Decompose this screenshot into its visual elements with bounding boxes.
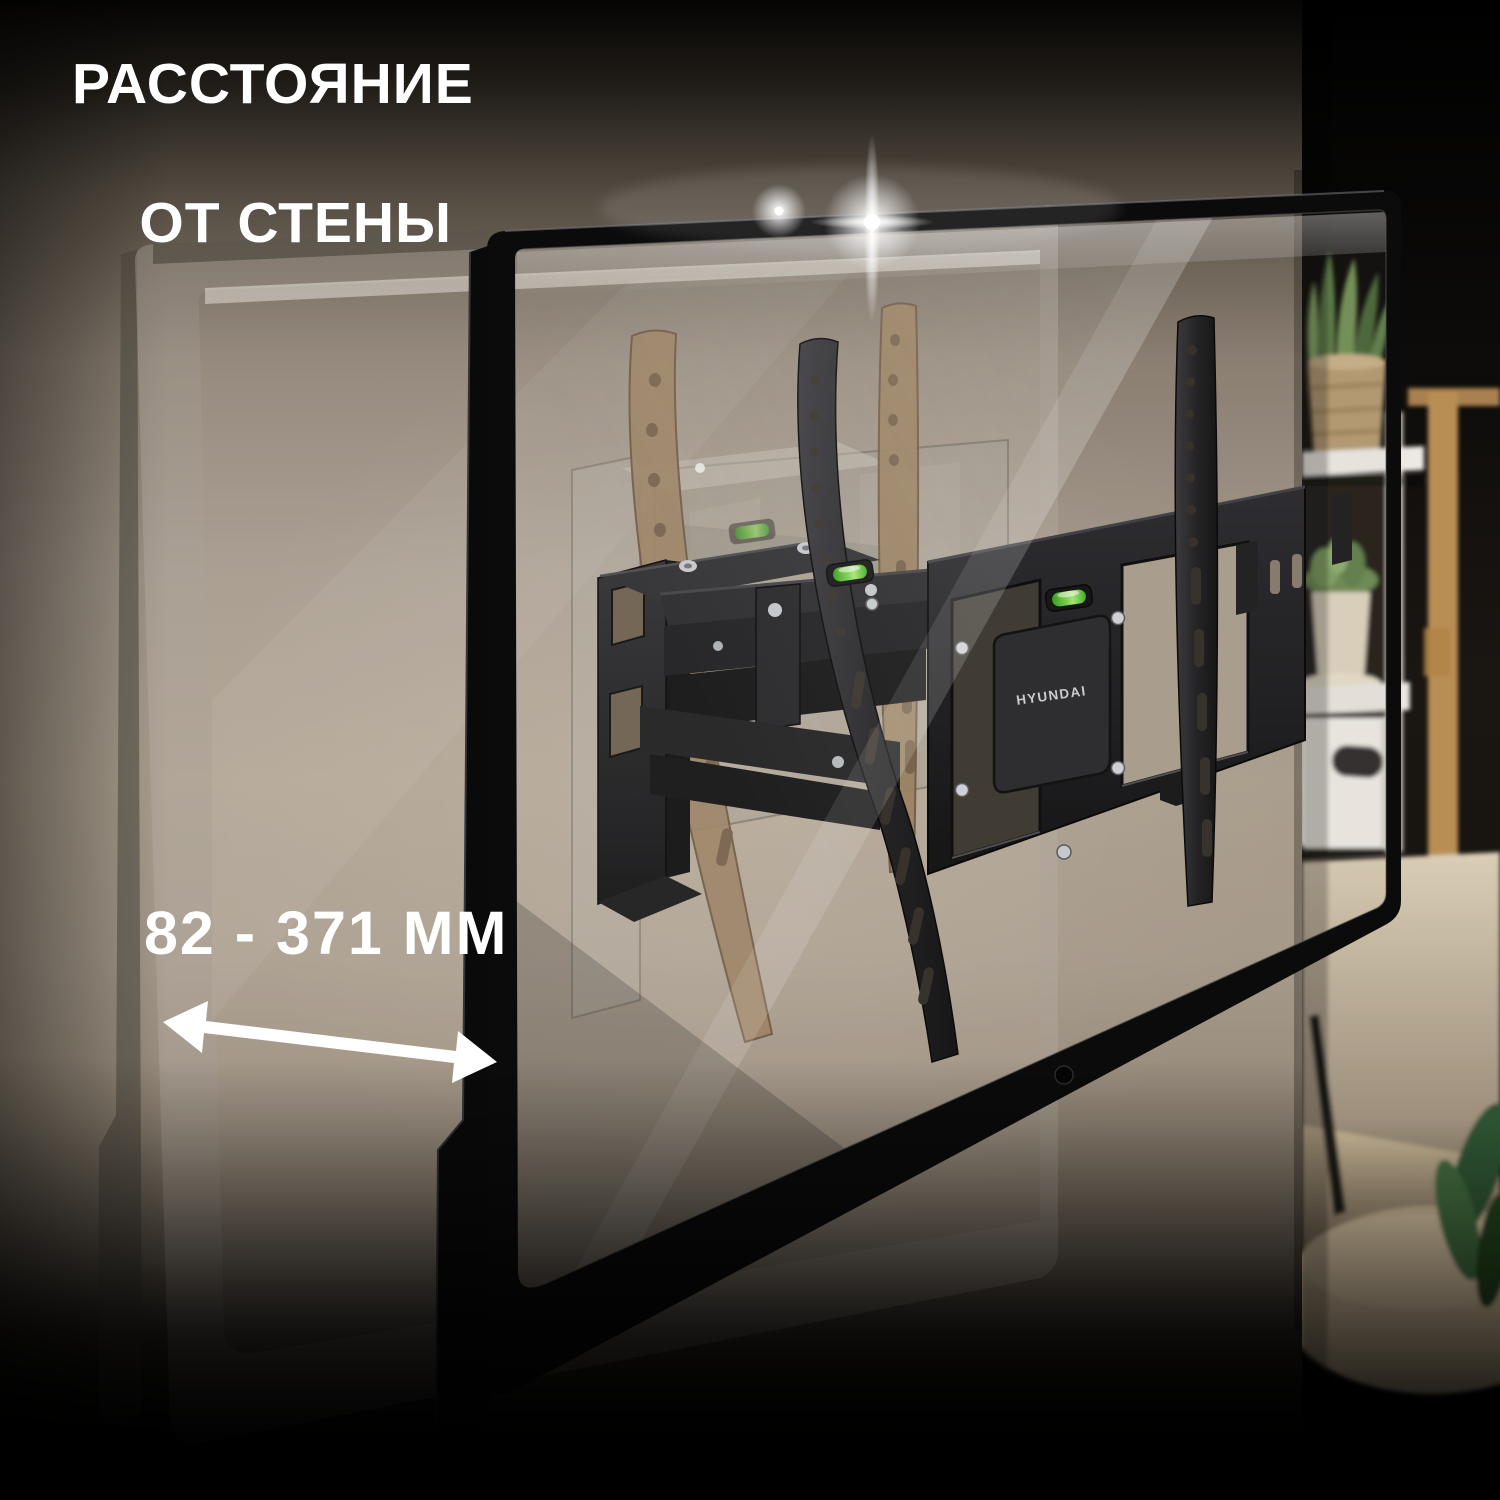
wood-cross-piece <box>1424 628 1450 676</box>
distance-range-label: 82 - 371 ММ <box>144 898 508 968</box>
wood-shelf-rail <box>1408 388 1500 406</box>
title-line-1: РАССТОЯНИЕ <box>72 52 474 116</box>
product-infographic-scene: HYUNDAI <box>0 0 1500 1500</box>
distance-title: РАССТОЯНИЕ ОТ СТЕНЫ <box>72 50 474 328</box>
bottom-shadow-left <box>0 1060 1302 1500</box>
bottom-shadow-right <box>1302 1120 1500 1500</box>
title-line-2: ОТ СТЕНЫ <box>139 191 452 255</box>
